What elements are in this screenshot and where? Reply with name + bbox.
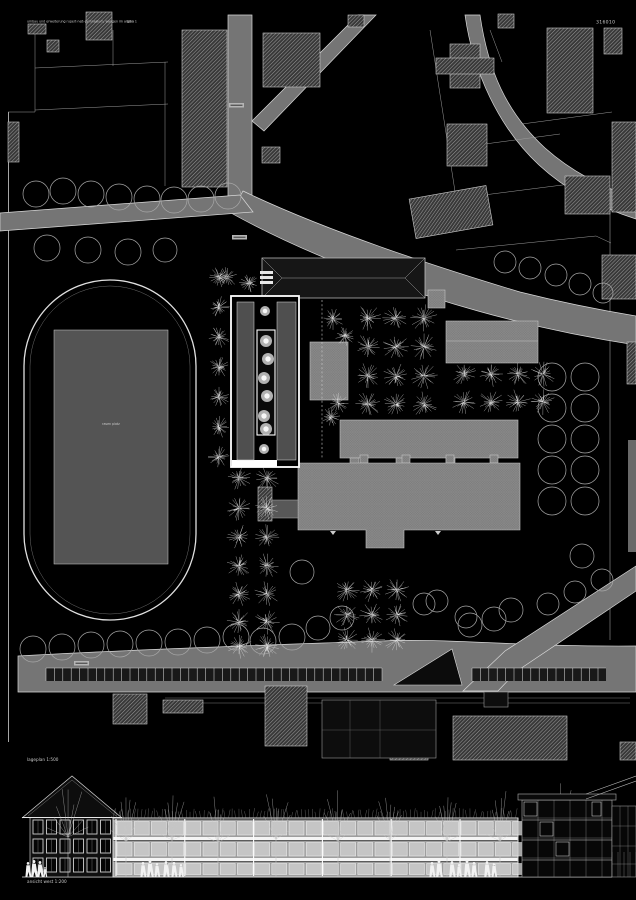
burst-needle (492, 368, 497, 373)
grass-tuft (351, 810, 353, 818)
burst-needle (240, 567, 249, 573)
burst-needle (515, 367, 518, 373)
hatched-building (409, 186, 493, 239)
burst-needle (208, 457, 218, 458)
tree-burst (360, 307, 381, 331)
courtyard-tree-core (263, 309, 268, 314)
tree-burst (212, 416, 229, 437)
burst-needle (238, 623, 239, 633)
parcel-line (490, 30, 502, 62)
courtyard-tree-core (263, 426, 268, 431)
street-west-wedge (0, 195, 253, 231)
hatched-building (627, 342, 636, 384)
grass-tuft (145, 809, 146, 818)
burst-needle (396, 395, 398, 403)
burst-needle (236, 510, 238, 521)
tree-ring (153, 238, 177, 262)
burst-needle (339, 591, 346, 599)
burst-needle (367, 347, 368, 348)
tree-burst (228, 467, 251, 489)
grass-tuft (516, 808, 518, 818)
burst-needle (541, 375, 543, 384)
grass-tuft (208, 811, 209, 818)
hatched-building (620, 742, 636, 760)
burst-needle (219, 416, 220, 426)
burst-needle (515, 375, 518, 384)
school-building (446, 455, 454, 463)
tree-burst (322, 408, 340, 425)
school-building (360, 455, 368, 463)
burst-needle (543, 362, 544, 373)
window-cell (255, 843, 270, 857)
tree-burst (337, 582, 360, 602)
burst-needle (372, 582, 375, 589)
tree-burst (506, 390, 530, 412)
burst-needle (342, 616, 347, 626)
burst-needle (492, 369, 499, 373)
section-outline (522, 800, 612, 877)
burst-needle (215, 397, 219, 398)
burst-needle (520, 399, 531, 402)
burst-needle (228, 278, 235, 284)
burst-needle (324, 318, 332, 319)
grass-tuft (292, 812, 293, 818)
burst-needle (391, 348, 395, 358)
tree-ring (455, 606, 477, 628)
burst-needle (268, 586, 273, 593)
tree-ring (482, 607, 506, 631)
window-cell (151, 843, 166, 857)
burst-needle (367, 348, 368, 357)
window-cell (169, 843, 184, 857)
parcel-line (456, 236, 596, 250)
burst-needle (463, 392, 464, 401)
window-cell (323, 864, 338, 875)
tree-burst (410, 304, 437, 331)
burst-needle (385, 348, 395, 355)
burst-needle (423, 348, 424, 358)
grass-tuft (327, 811, 329, 818)
tree-ring (538, 487, 566, 515)
burst-needle (411, 346, 423, 347)
burst-needle (220, 398, 226, 404)
burst-needle (398, 615, 407, 616)
burst-needle (240, 623, 247, 627)
tree-burst (210, 357, 228, 376)
window-cell (289, 822, 304, 836)
window-cell (409, 864, 424, 875)
hatched-building (47, 40, 59, 52)
burst-needle (212, 334, 218, 336)
burst-needle (267, 554, 268, 565)
burst-needle (239, 467, 241, 476)
hatched-building (263, 33, 320, 87)
tree-burst (453, 391, 476, 414)
courtyard-tree-core (264, 393, 269, 398)
burst-needle (519, 375, 525, 383)
window-cell (220, 864, 235, 875)
burst-needle (267, 537, 268, 538)
burst-needle (260, 640, 266, 645)
stair-symbol (260, 271, 273, 274)
grass-tuft (157, 810, 159, 818)
courtyard-tree-core (265, 356, 270, 361)
courtyard-tree-core (262, 447, 267, 452)
burst-needle (391, 396, 395, 403)
parcel-line (35, 62, 168, 68)
new-building (231, 296, 299, 467)
window-cell (427, 843, 442, 857)
tree-ring (545, 264, 567, 286)
burst-needle (215, 308, 219, 315)
grass-tuft (376, 809, 378, 818)
grass-tuft (267, 808, 268, 818)
burst-needle (266, 524, 267, 535)
hatched-building (182, 30, 227, 187)
hatched-building (262, 147, 280, 163)
burst-needle (413, 404, 423, 406)
burst-needle (258, 594, 266, 596)
burst-needle (387, 614, 396, 615)
gray-strip (628, 440, 636, 552)
school-main-building (298, 463, 520, 548)
burst-needle (398, 591, 407, 598)
poster-title: umbau und erweiterung rupert-neß-gymnasi… (27, 20, 134, 24)
tree-burst (255, 581, 278, 605)
burst-needle (240, 473, 250, 477)
tree-ring (306, 616, 330, 640)
burst-needle (396, 638, 397, 640)
burst-needle (397, 339, 406, 346)
tree-burst (480, 392, 502, 412)
window-cell (392, 843, 407, 857)
burst-needle (249, 278, 250, 283)
window-cell (306, 843, 321, 857)
burst-needle (211, 458, 218, 463)
burst-needle (397, 376, 405, 379)
school-building (402, 455, 410, 463)
tree-ring (537, 593, 559, 615)
burst-needle (268, 617, 276, 621)
grass-tuft (439, 812, 440, 818)
burst-needle (365, 348, 368, 355)
burst-needle (398, 581, 404, 589)
grass-tuft (342, 809, 344, 818)
grass-tuft (152, 811, 153, 818)
burst-needle (268, 537, 273, 540)
burst-needle (426, 315, 437, 318)
grass-tuft (481, 811, 483, 818)
burst-needle (334, 320, 342, 325)
tree-ring (519, 257, 541, 279)
house-roof (22, 776, 122, 818)
window-cell (444, 843, 459, 857)
hatched-building (86, 12, 112, 40)
parcel-line (522, 112, 612, 124)
burst-needle (519, 395, 524, 401)
grass-tuft (308, 809, 309, 818)
burst-needle (397, 394, 404, 403)
tree-burst (211, 296, 230, 316)
burst-needle (424, 395, 427, 403)
burst-needle (397, 347, 407, 351)
burst-needle (239, 586, 242, 593)
hatched-building (348, 15, 364, 27)
burst-needle (514, 375, 517, 383)
burst-needle (268, 479, 278, 484)
tree-burst (531, 389, 555, 415)
outlined-building (322, 700, 436, 758)
grass-tuft (332, 808, 333, 818)
burst-needle (373, 591, 380, 595)
window-cell (409, 843, 424, 857)
burst-needle (373, 586, 382, 589)
grass-tuft (154, 808, 155, 818)
burst-needle (263, 595, 266, 601)
tree-burst (383, 337, 409, 358)
burst-needle (394, 367, 396, 375)
window-cell (461, 843, 476, 857)
burst-needle (358, 342, 367, 347)
burst-needle (347, 630, 348, 639)
sports-field-label: rasen platz (102, 422, 120, 426)
burst-needle (361, 307, 367, 317)
burst-needle (424, 378, 427, 389)
burst-needle (235, 538, 239, 548)
hatched-building (265, 686, 307, 746)
tree-burst (355, 393, 379, 415)
roof-outline-building (262, 258, 425, 298)
grass-tuft (381, 811, 383, 818)
window-cell (495, 822, 510, 836)
hatched-building (436, 58, 494, 74)
window-cell (289, 864, 304, 875)
plan-number-label: plan 1 (127, 20, 137, 24)
grass-tuft (253, 808, 255, 818)
grass-tuft (511, 810, 512, 818)
burst-needle (220, 307, 229, 308)
burst-needle (492, 366, 496, 373)
tree-burst (229, 582, 250, 606)
window-cell (272, 864, 287, 875)
tree-burst (210, 387, 229, 406)
burst-needle (267, 621, 271, 622)
window-cell (375, 843, 390, 857)
grass-tuft (181, 810, 183, 818)
burst-needle (219, 366, 224, 367)
burst-needle (388, 633, 396, 639)
burst-needle (236, 556, 239, 564)
hatched-building (602, 255, 636, 299)
window-cell (495, 843, 510, 857)
grass-tuft (301, 809, 302, 818)
grass-tuft (286, 808, 288, 818)
burst-needle (259, 595, 266, 603)
tree-ring (290, 560, 314, 584)
tree-ring (75, 237, 101, 263)
hatched-building (163, 700, 203, 713)
architectural-drawing: umbau und erweiterung rupert-neß-gymnasi… (0, 0, 636, 900)
window-cell (392, 864, 407, 875)
window-cell (134, 843, 149, 857)
grass-tuft (474, 811, 475, 818)
tree-burst (227, 609, 248, 633)
burst-needle (228, 277, 233, 278)
burst-needle (385, 319, 395, 324)
tree-burst (384, 364, 407, 386)
burst-needle (220, 420, 226, 426)
hatched-building (612, 122, 636, 212)
burst-needle (369, 348, 375, 355)
window-cell (272, 843, 287, 857)
window-cell (255, 822, 270, 836)
grass-tuft (315, 812, 316, 818)
window-cell (237, 843, 252, 857)
burst-needle (235, 509, 238, 517)
grass-tuft (365, 810, 367, 818)
tree-ring (571, 487, 599, 515)
new-building-west-wing (237, 302, 254, 460)
grass-tuft (297, 810, 298, 818)
window-cell (461, 822, 476, 836)
burst-needle (266, 567, 267, 576)
grass-tuft (475, 809, 477, 818)
window-cell (341, 864, 356, 875)
grass-tuft (427, 811, 428, 818)
burst-needle (211, 396, 218, 397)
burst-needle (268, 623, 274, 632)
burst-needle (422, 392, 424, 403)
hatched-building (8, 122, 19, 162)
window-cell (203, 864, 218, 875)
burst-needle (425, 398, 431, 404)
new-building-east-wing (277, 302, 296, 460)
school-building (310, 342, 348, 400)
grass-tuft (141, 809, 142, 818)
courtyard-tree-core (261, 375, 266, 380)
burst-needle (347, 582, 348, 589)
burst-needle (209, 277, 218, 278)
grass-tuft (347, 812, 348, 818)
school-corridor (272, 500, 298, 518)
tree-ring (538, 456, 566, 484)
school-building (428, 290, 445, 308)
hatched-building (604, 28, 622, 54)
tree-burst (209, 328, 229, 348)
burst-needle (372, 607, 375, 614)
tree-burst (454, 365, 476, 384)
hatched-building (565, 176, 610, 214)
burst-needle (416, 347, 423, 350)
burst-needle (240, 613, 248, 621)
grass-tuft (244, 811, 246, 818)
window-cell (358, 822, 373, 836)
tree-burst (255, 611, 279, 635)
hatched-building (258, 487, 272, 521)
burst-needle (256, 478, 265, 480)
burst-needle (371, 607, 372, 614)
window-cell (186, 843, 201, 857)
grass-tuft (200, 811, 201, 818)
tree-ring (571, 363, 599, 391)
window-cell (358, 864, 373, 875)
burst-needle (425, 377, 433, 384)
tree-ring (34, 235, 60, 261)
grass-tuft (323, 809, 325, 818)
grass-tuft (353, 811, 354, 818)
hatched-building (28, 24, 46, 34)
grass-tuft (414, 808, 415, 818)
slab-line (114, 837, 518, 840)
burst-needle (390, 579, 396, 588)
burst-needle (240, 535, 248, 537)
burst-needle (266, 595, 267, 604)
burst-needle (230, 561, 238, 565)
burst-needle (484, 401, 490, 402)
burst-needle (397, 364, 401, 375)
burst-needle (234, 641, 239, 646)
site-plan (0, 12, 636, 760)
window-cell (427, 822, 442, 836)
stair-symbol (260, 276, 273, 279)
window-cell (495, 864, 510, 875)
burst-needle (219, 446, 220, 455)
burst-needle (457, 394, 463, 401)
grass-tuft (336, 812, 337, 818)
grass-tuft (406, 810, 407, 818)
grass-tuft (257, 812, 259, 818)
burst-needle (389, 377, 395, 385)
tree-burst (358, 335, 380, 357)
tree-burst (359, 604, 382, 623)
tree-burst (255, 524, 279, 546)
burst-needle (227, 620, 238, 621)
window-cell (306, 864, 321, 875)
burst-needle (220, 458, 225, 465)
burst-needle (334, 318, 342, 319)
tree-burst (358, 363, 378, 388)
window-cell (272, 822, 287, 836)
burst-needle (492, 395, 501, 401)
burst-needle (385, 403, 395, 404)
burst-needle (240, 525, 244, 535)
burst-needle (397, 342, 404, 347)
burst-needle (336, 616, 345, 622)
window-cell (255, 864, 270, 875)
burst-needle (231, 643, 238, 645)
burst-needle (394, 319, 396, 325)
window-cell (478, 843, 493, 857)
tree-ring (538, 394, 566, 422)
stair-symbol (260, 281, 273, 284)
grass-tuft (194, 809, 195, 818)
tree-ring (571, 394, 599, 422)
grass-tuft (372, 810, 373, 818)
burst-needle (453, 403, 463, 408)
burst-needle (373, 591, 377, 597)
grass-tuft (320, 808, 321, 818)
burst-needle (338, 607, 346, 614)
grass-tuft (295, 810, 296, 818)
gable-house-elevation (22, 776, 122, 877)
burst-needle (544, 403, 549, 412)
burst-needle (268, 562, 274, 565)
section-roof (518, 794, 616, 800)
tree-burst (507, 363, 530, 385)
window-cell (220, 843, 235, 857)
grass-tuft (235, 811, 236, 818)
tree-burst (386, 604, 407, 626)
